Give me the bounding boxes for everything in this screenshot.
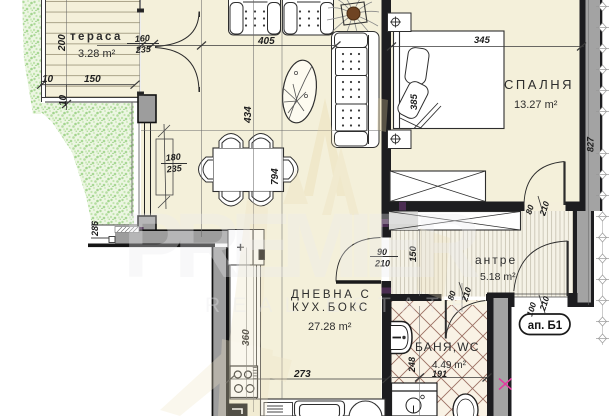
svg-text:160: 160 [134, 33, 150, 44]
svg-text:10: 10 [42, 74, 54, 85]
svg-text:ап. Б1: ап. Б1 [528, 320, 563, 332]
svg-text:150: 150 [84, 74, 101, 85]
svg-text:БАНЯ,WC: БАНЯ,WC [415, 340, 480, 354]
svg-text:385: 385 [409, 93, 420, 110]
svg-text:827: 827 [586, 136, 596, 152]
svg-text:10: 10 [58, 94, 69, 106]
svg-text:248: 248 [407, 357, 417, 373]
svg-text:794: 794 [270, 168, 281, 185]
svg-text:5.18 m²: 5.18 m² [480, 271, 516, 283]
svg-text:13.27 m²: 13.27 m² [514, 99, 558, 111]
svg-text:PREMIER: PREMIER [123, 195, 481, 297]
svg-text:286: 286 [90, 220, 100, 237]
svg-text:405: 405 [257, 36, 275, 47]
svg-text:345: 345 [474, 35, 491, 46]
svg-text:180: 180 [165, 151, 181, 163]
svg-text:REAL ESTATE: REAL ESTATE [205, 294, 477, 317]
svg-text:235: 235 [165, 163, 183, 175]
svg-text:200: 200 [57, 34, 68, 52]
svg-text:27.28 m²: 27.28 m² [308, 321, 352, 333]
svg-text:антре: антре [475, 253, 517, 267]
svg-text:235: 235 [134, 44, 152, 55]
svg-text:3.28 m²: 3.28 m² [78, 48, 116, 60]
svg-text:СПАЛНЯ: СПАЛНЯ [504, 77, 574, 92]
svg-text:тераса: тераса [70, 31, 123, 43]
svg-text:4.49 m²: 4.49 m² [432, 360, 467, 371]
svg-text:434: 434 [243, 106, 254, 124]
svg-text:273: 273 [293, 369, 311, 380]
